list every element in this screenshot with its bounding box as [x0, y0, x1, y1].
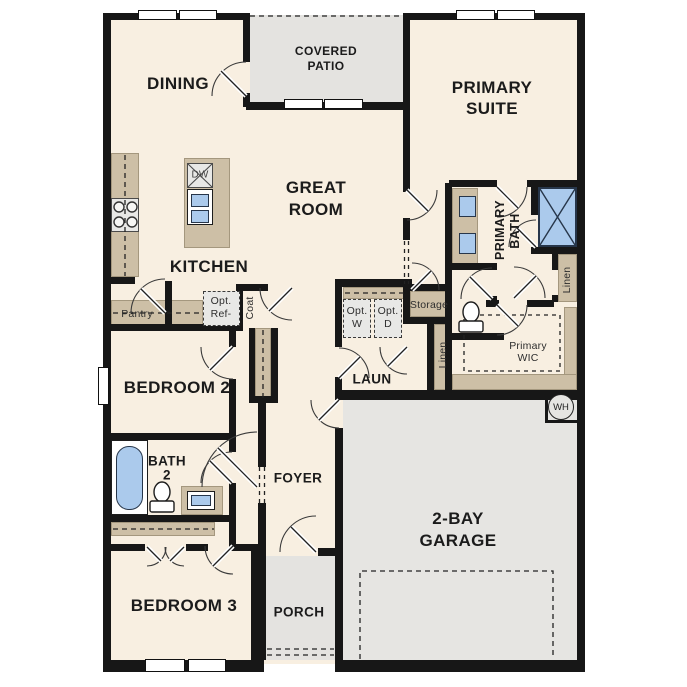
label-linen-closet: Linen: [437, 342, 449, 369]
wall-segment: [449, 180, 497, 187]
room-label-garage: GARAGE: [419, 531, 496, 551]
wall-segment: [335, 548, 343, 660]
room-label-bath2: BATH: [148, 454, 186, 469]
label-opt-dryer: Opt.: [378, 305, 399, 317]
wall-segment: [403, 218, 410, 240]
window: [179, 10, 217, 20]
label-opt-washer: W: [352, 318, 362, 330]
room-label-covered-patio: COVERED: [295, 44, 357, 58]
wall-segment: [251, 551, 258, 660]
bath2-sink-bowl: [191, 495, 211, 506]
wall-segment: [335, 377, 342, 394]
wall-segment: [103, 13, 111, 672]
window: [456, 10, 495, 20]
room-label-bath2: 2: [163, 468, 171, 483]
wall-segment: [403, 20, 410, 110]
garage-floor: [343, 400, 577, 660]
window: [497, 10, 535, 20]
wall-segment: [577, 13, 585, 672]
wall-segment: [531, 187, 538, 215]
wall-segment: [271, 328, 278, 403]
wall-segment: [231, 544, 258, 551]
label-opt-washer: Opt.: [347, 305, 368, 317]
wall-segment: [552, 254, 558, 270]
room-label-porch: PORCH: [274, 605, 325, 620]
room-label-bedroom2: BEDROOM 2: [124, 378, 231, 398]
primary-sink-bowl: [459, 233, 476, 254]
wall-segment: [249, 396, 278, 403]
room-label-great-room: GREAT: [286, 178, 346, 198]
cooktop: [111, 198, 139, 232]
wall-segment: [527, 180, 585, 187]
wall-segment: [335, 660, 585, 672]
wall-segment: [545, 420, 578, 423]
primary-sink-bowl: [459, 196, 476, 217]
label-opt-ref: Ref-: [211, 308, 232, 320]
window: [98, 367, 109, 405]
wall-segment: [427, 324, 434, 390]
wall-segment: [249, 328, 255, 403]
window: [324, 99, 363, 109]
floor-plan: WH: [0, 0, 687, 687]
wall-segment: [403, 110, 410, 192]
label-pantry: Pantry: [121, 308, 153, 320]
room-label-primary-suite: SUITE: [466, 99, 518, 119]
window: [188, 659, 226, 672]
kitchen-sink-bowl: [191, 194, 209, 207]
window: [284, 99, 323, 109]
cabinet-fill: [255, 328, 271, 403]
window: [145, 659, 185, 672]
kitchen-sink-bowl: [191, 210, 209, 223]
label-primary-wic: WIC: [517, 352, 538, 364]
wall-segment: [335, 287, 342, 347]
wall-segment: [229, 331, 236, 347]
label-opt-dryer: D: [384, 318, 392, 330]
water-heater-label: WH: [553, 402, 569, 413]
wall-segment: [186, 544, 208, 551]
label-coat-closet: Coat: [244, 297, 256, 320]
wall-segment: [531, 247, 584, 254]
room-label-great-room: ROOM: [289, 200, 343, 220]
wall-segment: [490, 263, 497, 270]
room-label-primary-suite: PRIMARY: [452, 78, 533, 98]
label-primary-wic: Primary: [509, 340, 547, 352]
wall-segment: [236, 284, 268, 291]
wall-segment: [258, 548, 266, 660]
wall-segment: [229, 440, 236, 452]
room-label-laundry: LAUN: [352, 372, 391, 387]
wall-segment: [103, 515, 236, 522]
wall-segment: [527, 300, 554, 307]
room-label-primary-bath: PRIMARY: [493, 200, 507, 260]
wall-segment: [445, 333, 504, 340]
cabinet-fill: [452, 374, 577, 390]
cabinet-fill: [111, 522, 215, 536]
label-dishwasher: DW: [191, 170, 208, 181]
label-linen-closet: Linen: [561, 267, 573, 294]
shower: [538, 187, 577, 247]
room-label-kitchen: KITCHEN: [170, 257, 248, 277]
bathtub: [116, 446, 143, 510]
label-storage-closet: Storage: [410, 299, 448, 311]
window: [138, 10, 177, 20]
room-label-dining: DINING: [147, 74, 209, 94]
wall-segment: [103, 544, 145, 551]
wall-segment: [486, 300, 499, 307]
wall-segment: [165, 281, 172, 326]
cabinet-fill: [343, 287, 408, 299]
wall-segment: [335, 428, 343, 548]
room-label-covered-patio: PATIO: [308, 59, 345, 73]
room-label-bedroom3: BEDROOM 3: [131, 596, 238, 616]
label-opt-ref: Opt.: [211, 295, 232, 307]
wall-segment: [258, 403, 266, 467]
water-heater: WH: [548, 394, 574, 420]
room-label-primary-bath: BATH: [508, 213, 522, 248]
wall-segment: [335, 279, 412, 287]
wall-segment: [103, 433, 236, 440]
room-label-garage: 2-BAY: [432, 509, 483, 529]
wall-segment: [103, 277, 135, 284]
wall-segment: [258, 503, 266, 549]
wall-segment: [243, 20, 250, 62]
room-label-foyer: FOYER: [274, 471, 323, 486]
